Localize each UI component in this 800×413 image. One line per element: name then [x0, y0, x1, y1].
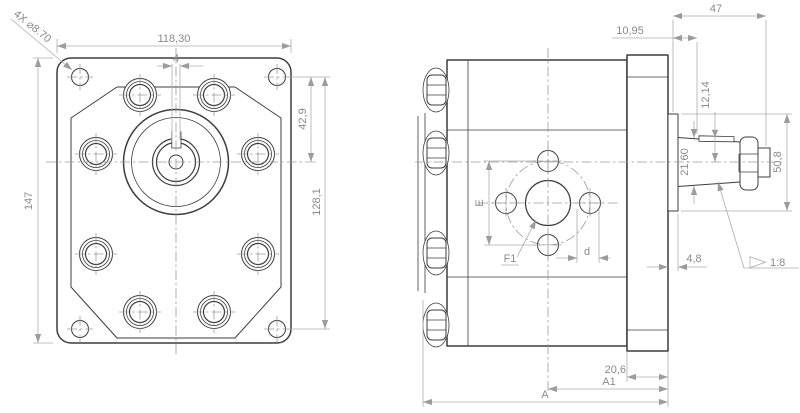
mounting-flange-plate	[627, 55, 668, 351]
dim-flange-height: 147	[23, 192, 35, 210]
dim-rear-cover-thickness: 20,6	[605, 364, 626, 376]
dim-shaft-end-length: 47	[710, 3, 722, 15]
drawing-canvas: 118,30 4X ⌀8.70 4 42,9 128,1 147	[0, 0, 800, 413]
side-view: 47 10,95 12,14 21,60 50,8 4,8 1	[415, 3, 799, 407]
hex-bolt-head	[427, 75, 446, 105]
dim-pilot-thickness: 4,8	[686, 253, 701, 265]
dim-port-bolt-spacing: E	[474, 199, 486, 206]
shaft-nut	[740, 137, 758, 190]
dim-keyway-width: 4	[173, 53, 179, 65]
dim-flange-width: 118,30	[158, 33, 191, 45]
shaft-key	[699, 136, 734, 142]
pilot-boss	[668, 114, 678, 211]
hex-bolt-head	[427, 138, 446, 168]
front-view: 118,30 4X ⌀8.70 4 42,9 128,1 147	[11, 8, 330, 354]
dim-port-hole: d	[584, 246, 590, 258]
taper-symbol	[750, 257, 766, 268]
dim-pilot-diameter: 50,8	[772, 151, 784, 172]
dim-boss-to-key: 10,95	[616, 25, 644, 37]
hex-bolt-head	[427, 238, 446, 268]
hex-bolt-head	[427, 310, 446, 340]
label-port-f1: F1	[504, 253, 517, 265]
dim-corner-hole-callout: 4X ⌀8.70	[11, 8, 53, 45]
dim-hole-spacing: 128,1	[311, 188, 323, 216]
dim-taper-ratio: 1:8	[770, 257, 785, 269]
technical-drawing: 118,30 4X ⌀8.70 4 42,9 128,1 147	[0, 0, 800, 413]
dim-key-to-center: 12,14	[700, 81, 712, 109]
drive-shaft	[678, 136, 770, 190]
dim-length-a: A	[541, 389, 549, 401]
dim-length-a1: A1	[602, 376, 615, 388]
dim-taper-diameter: 21,60	[679, 148, 691, 176]
dim-hole-to-center: 42,9	[297, 108, 309, 129]
thread-stub	[758, 148, 770, 177]
